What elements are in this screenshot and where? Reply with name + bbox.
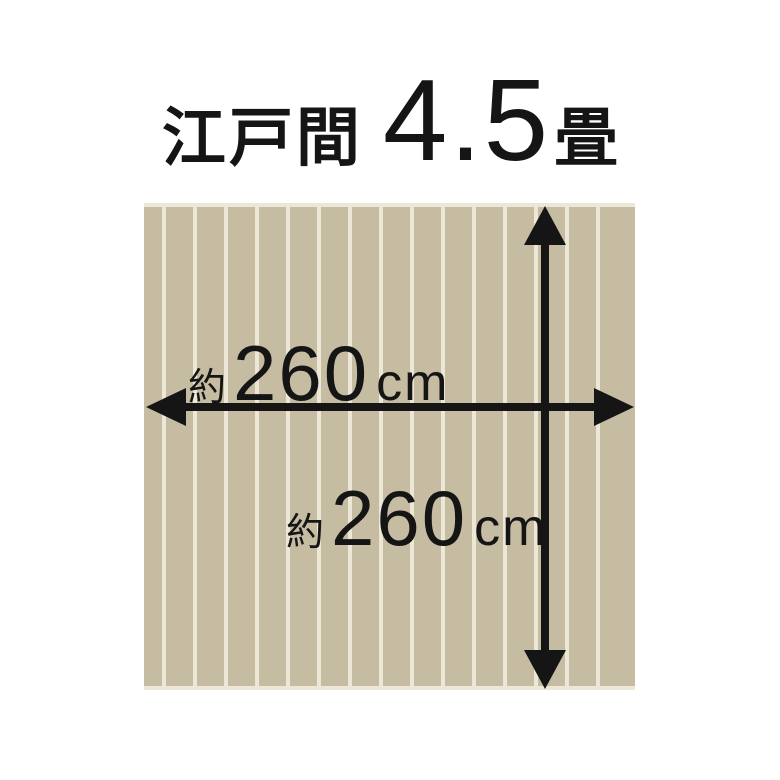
width-unit: cm (376, 357, 449, 409)
width-dimension-label: 約 260 cm (188, 334, 449, 412)
height-dimension-label: 約 260 cm (286, 479, 547, 557)
height-value: 260 (331, 479, 467, 557)
width-value: 260 (233, 334, 369, 412)
vertical-dimension-arrow (524, 206, 566, 689)
height-approx-prefix: 約 (286, 514, 324, 552)
width-approx-prefix: 約 (188, 369, 226, 407)
dimension-diagram-page: 江戸間 4.5 畳 約 260 cm 約 260 cm (0, 0, 780, 780)
height-unit: cm (474, 502, 547, 554)
